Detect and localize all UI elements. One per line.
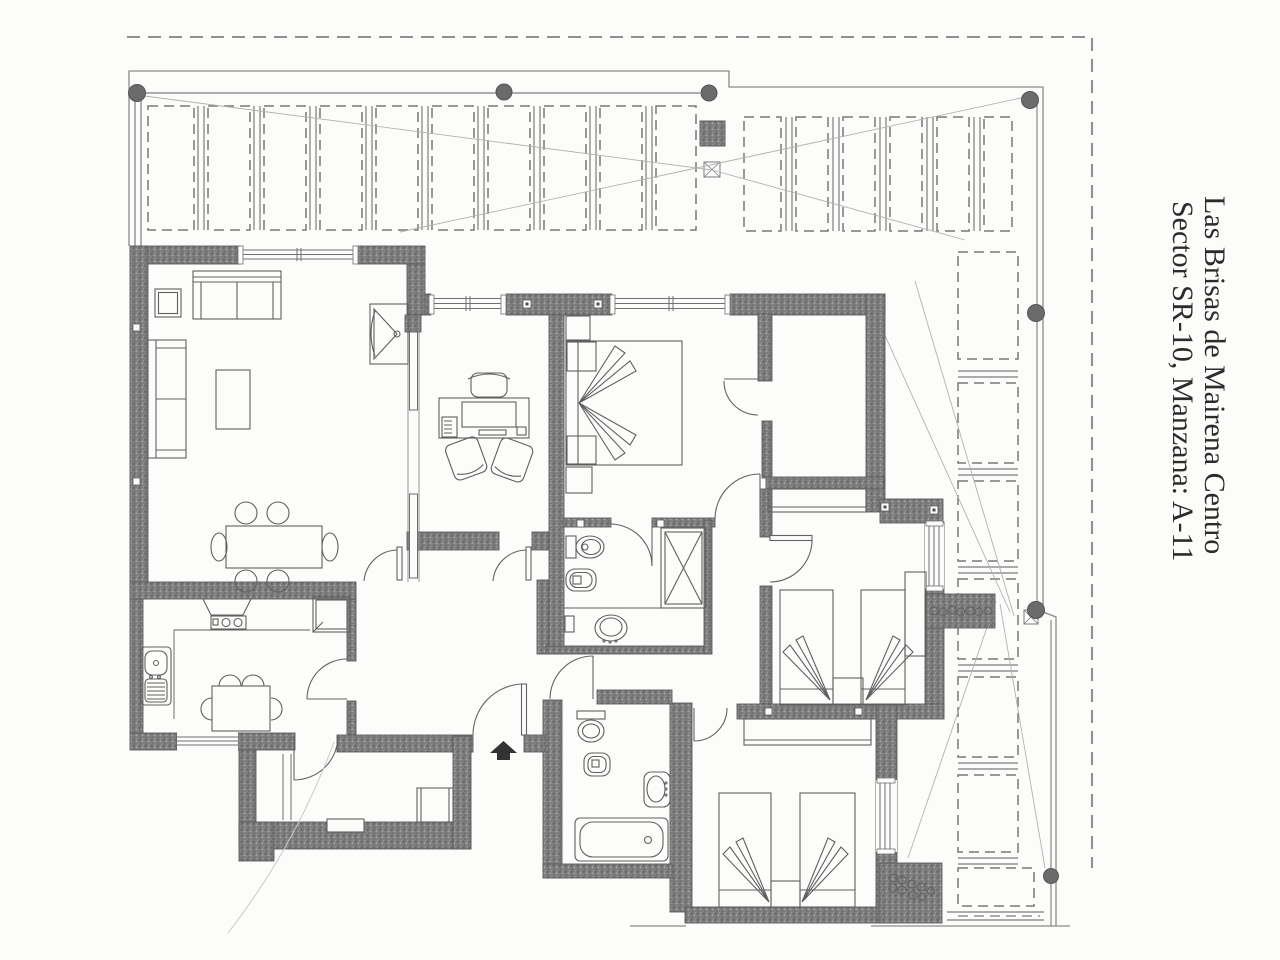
svg-text:Las Brisas de Mairena Centro: Las Brisas de Mairena Centro <box>1198 196 1231 554</box>
svg-text:Sector SR-10, Manzana: A-11: Sector SR-10, Manzana: A-11 <box>1166 201 1199 561</box>
